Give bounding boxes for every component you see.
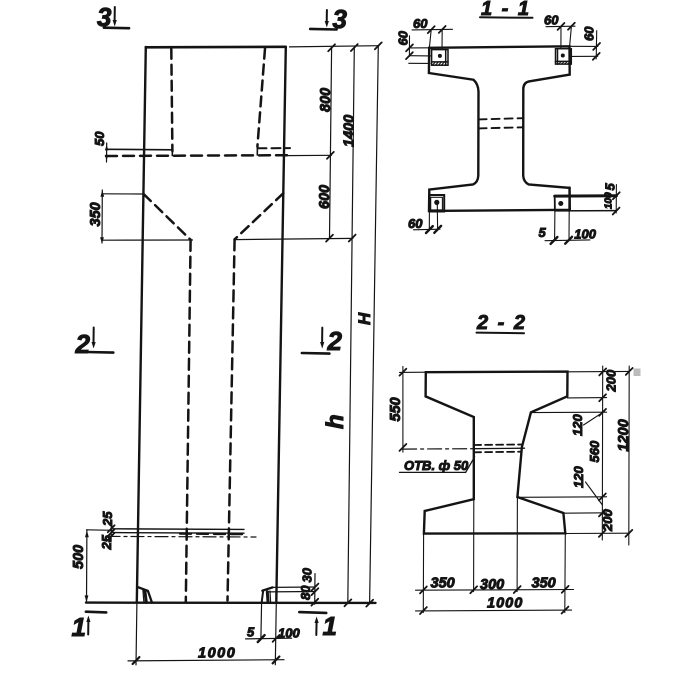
svg-text:120: 120 (571, 466, 586, 488)
svg-text:550: 550 (388, 397, 404, 421)
svg-text:800: 800 (318, 88, 334, 112)
svg-text:60: 60 (544, 13, 559, 28)
svg-text:5: 5 (247, 625, 255, 640)
svg-text:350: 350 (532, 576, 556, 592)
svg-text:1400: 1400 (342, 115, 358, 147)
svg-text:5: 5 (539, 225, 547, 240)
svg-text:80: 80 (298, 585, 313, 600)
svg-text:100: 100 (278, 626, 300, 641)
svg-text:1000: 1000 (198, 646, 236, 662)
svg-text:1: 1 (72, 612, 86, 642)
svg-text:560: 560 (587, 440, 602, 462)
svg-text:100: 100 (574, 227, 596, 242)
svg-text:60: 60 (582, 26, 597, 41)
svg-text:1: 1 (323, 611, 337, 641)
svg-text:2: 2 (327, 326, 343, 356)
svg-text:2 - 2: 2 - 2 (476, 312, 527, 334)
svg-text:500: 500 (71, 545, 87, 569)
svg-text:h: h (322, 414, 349, 429)
svg-text:300: 300 (480, 577, 504, 593)
svg-text:25: 25 (100, 511, 115, 527)
svg-text:ОТВ. ф 50: ОТВ. ф 50 (404, 458, 469, 473)
svg-text:60: 60 (408, 216, 423, 231)
svg-text:60: 60 (396, 30, 411, 45)
svg-text:50: 50 (92, 131, 107, 146)
svg-text:120: 120 (570, 414, 585, 436)
svg-text:200: 200 (600, 509, 615, 532)
svg-text:30: 30 (300, 567, 315, 582)
svg-text:1200: 1200 (616, 419, 632, 451)
svg-text:2: 2 (75, 329, 91, 359)
svg-text:100: 100 (604, 192, 615, 209)
svg-text:H: H (355, 312, 374, 325)
svg-text:350: 350 (431, 576, 455, 592)
svg-text:5: 5 (603, 183, 618, 191)
svg-text:200: 200 (604, 369, 619, 392)
svg-text:350: 350 (88, 202, 104, 226)
svg-text:1000: 1000 (487, 596, 523, 612)
svg-text:600: 600 (317, 185, 333, 209)
svg-text:60: 60 (413, 16, 428, 31)
svg-text:25: 25 (99, 534, 114, 550)
